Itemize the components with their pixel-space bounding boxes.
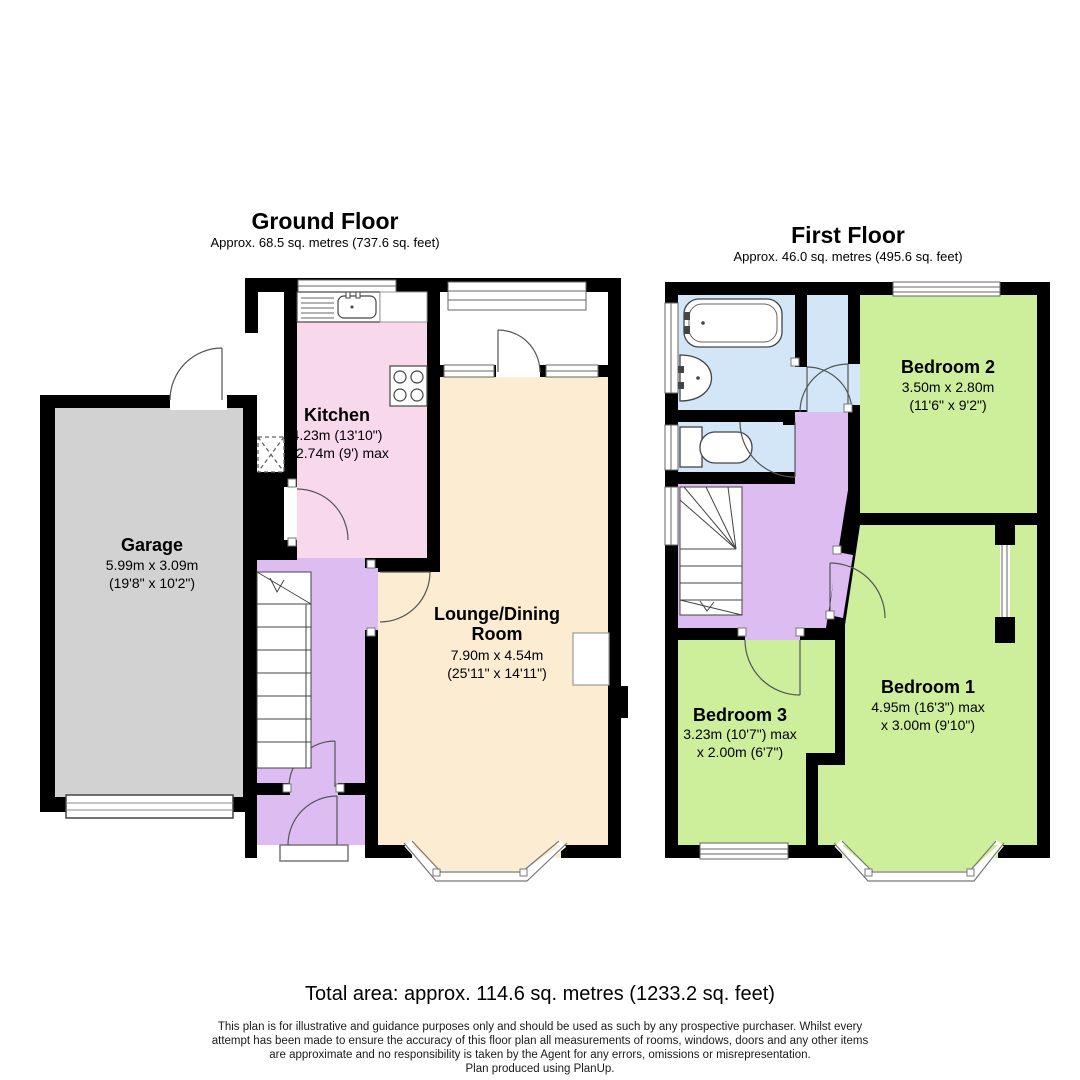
fireplace-fixture bbox=[573, 633, 609, 685]
first-floor-plan: Bedroom 2 3.50m x 2.80m (11'6" x 9'2") B… bbox=[665, 282, 1050, 881]
total-area-text: Total area: approx. 114.6 sq. metres (12… bbox=[0, 983, 1080, 1006]
entrance-doorway bbox=[496, 365, 540, 377]
room-dims: 7.90m x 4.54m bbox=[451, 647, 544, 663]
hob-fixture bbox=[390, 366, 427, 406]
garage-door bbox=[66, 795, 233, 818]
disclaimer-line: are approximate and no responsibility is… bbox=[140, 1048, 940, 1062]
room-dims: (19'8" x 10'2") bbox=[109, 575, 195, 591]
room-dims: (25'11" x 14'11") bbox=[447, 665, 547, 681]
first-floor-title: First Floor bbox=[668, 222, 1028, 248]
room-label: Lounge/Dining bbox=[434, 604, 560, 624]
sink-drain bbox=[351, 306, 354, 309]
bathtub-fixture bbox=[684, 299, 782, 347]
ground-floor-area: Approx. 68.5 sq. metres (737.6 sq. feet) bbox=[145, 234, 505, 251]
room-dims: x 2.74m (9') max bbox=[285, 445, 389, 461]
bedroom3-doorway bbox=[745, 628, 800, 640]
bedroom2-window bbox=[893, 282, 1000, 296]
room-label: Kitchen bbox=[304, 405, 370, 425]
sink-basin-fixture bbox=[338, 296, 376, 318]
disclaimer-line: This plan is for illustrative and guidan… bbox=[140, 1020, 940, 1034]
room-dims: x 2.00m (6'7") bbox=[697, 744, 783, 760]
room-dims: 4.95m (16'3") max bbox=[871, 699, 984, 715]
bay-window-bedroom1 bbox=[834, 841, 1004, 881]
floorplan-drawing: Garage 5.99m x 3.09m (19'8" x 10'2") Kit… bbox=[0, 0, 1080, 1080]
room-label: Bedroom 2 bbox=[901, 357, 995, 377]
sink-tap bbox=[356, 292, 360, 298]
kitchen-side-doorway bbox=[284, 487, 297, 540]
room-dims: (11'6" x 9'2") bbox=[909, 397, 986, 413]
porch-window bbox=[448, 282, 586, 310]
disclaimer-line: attempt has been made to ensure the accu… bbox=[140, 1034, 940, 1048]
disclaimer: This plan is for illustrative and guidan… bbox=[140, 1020, 940, 1076]
garage-side-doorway bbox=[170, 395, 227, 410]
first-floor-header: First Floor Approx. 46.0 sq. metres (495… bbox=[668, 222, 1028, 265]
room-dims: 3.23m (10'7") max bbox=[683, 726, 796, 742]
chimney-breast bbox=[608, 686, 628, 718]
bedroom1-label: Bedroom 1 4.95m (16'3") max x 3.00m (9'1… bbox=[871, 677, 984, 733]
bedroom2-label: Bedroom 2 3.50m x 2.80m (11'6" x 9'2") bbox=[901, 357, 995, 413]
front-door-threshold bbox=[280, 845, 348, 861]
ground-floor-plan: Garage 5.99m x 3.09m (19'8" x 10'2") Kit… bbox=[40, 278, 628, 881]
disclaimer-line: Plan produced using PlanUp. bbox=[140, 1062, 940, 1076]
side-passage bbox=[258, 292, 284, 472]
room-dims: x 3.00m (9'10") bbox=[881, 717, 975, 733]
stairs-ground bbox=[257, 572, 311, 768]
room-label: Garage bbox=[121, 535, 183, 555]
bay-window-lounge bbox=[404, 841, 567, 881]
room-garage bbox=[55, 408, 243, 797]
worktop bbox=[380, 292, 427, 322]
landing-vestibule bbox=[807, 295, 848, 412]
room-label: Bedroom 1 bbox=[881, 677, 975, 697]
sink-tap bbox=[346, 292, 350, 298]
kitchen-hall-opening bbox=[297, 558, 365, 572]
ground-floor-header: Ground Floor Approx. 68.5 sq. metres (73… bbox=[145, 208, 505, 251]
first-floor-area: Approx. 46.0 sq. metres (495.6 sq. feet) bbox=[668, 248, 1028, 265]
bedroom3-label: Bedroom 3 3.23m (10'7") max x 2.00m (6'7… bbox=[683, 705, 796, 760]
room-label: Bedroom 3 bbox=[693, 705, 787, 725]
room-dims: 3.50m x 2.80m bbox=[902, 379, 995, 395]
ground-floor-title: Ground Floor bbox=[145, 208, 505, 234]
room-label: Room bbox=[472, 624, 523, 644]
floorplan-page: Garage 5.99m x 3.09m (19'8" x 10'2") Kit… bbox=[0, 0, 1080, 1080]
bedroom3-window bbox=[700, 843, 788, 859]
garage-side-door-arc bbox=[170, 348, 222, 400]
hall-lounge-doorway bbox=[365, 568, 378, 630]
wc-doorway bbox=[783, 425, 795, 472]
stairs-first bbox=[680, 487, 742, 615]
room-dims: 4.23m (13'10") bbox=[292, 427, 383, 443]
room-dims: 5.99m x 3.09m bbox=[106, 557, 199, 573]
